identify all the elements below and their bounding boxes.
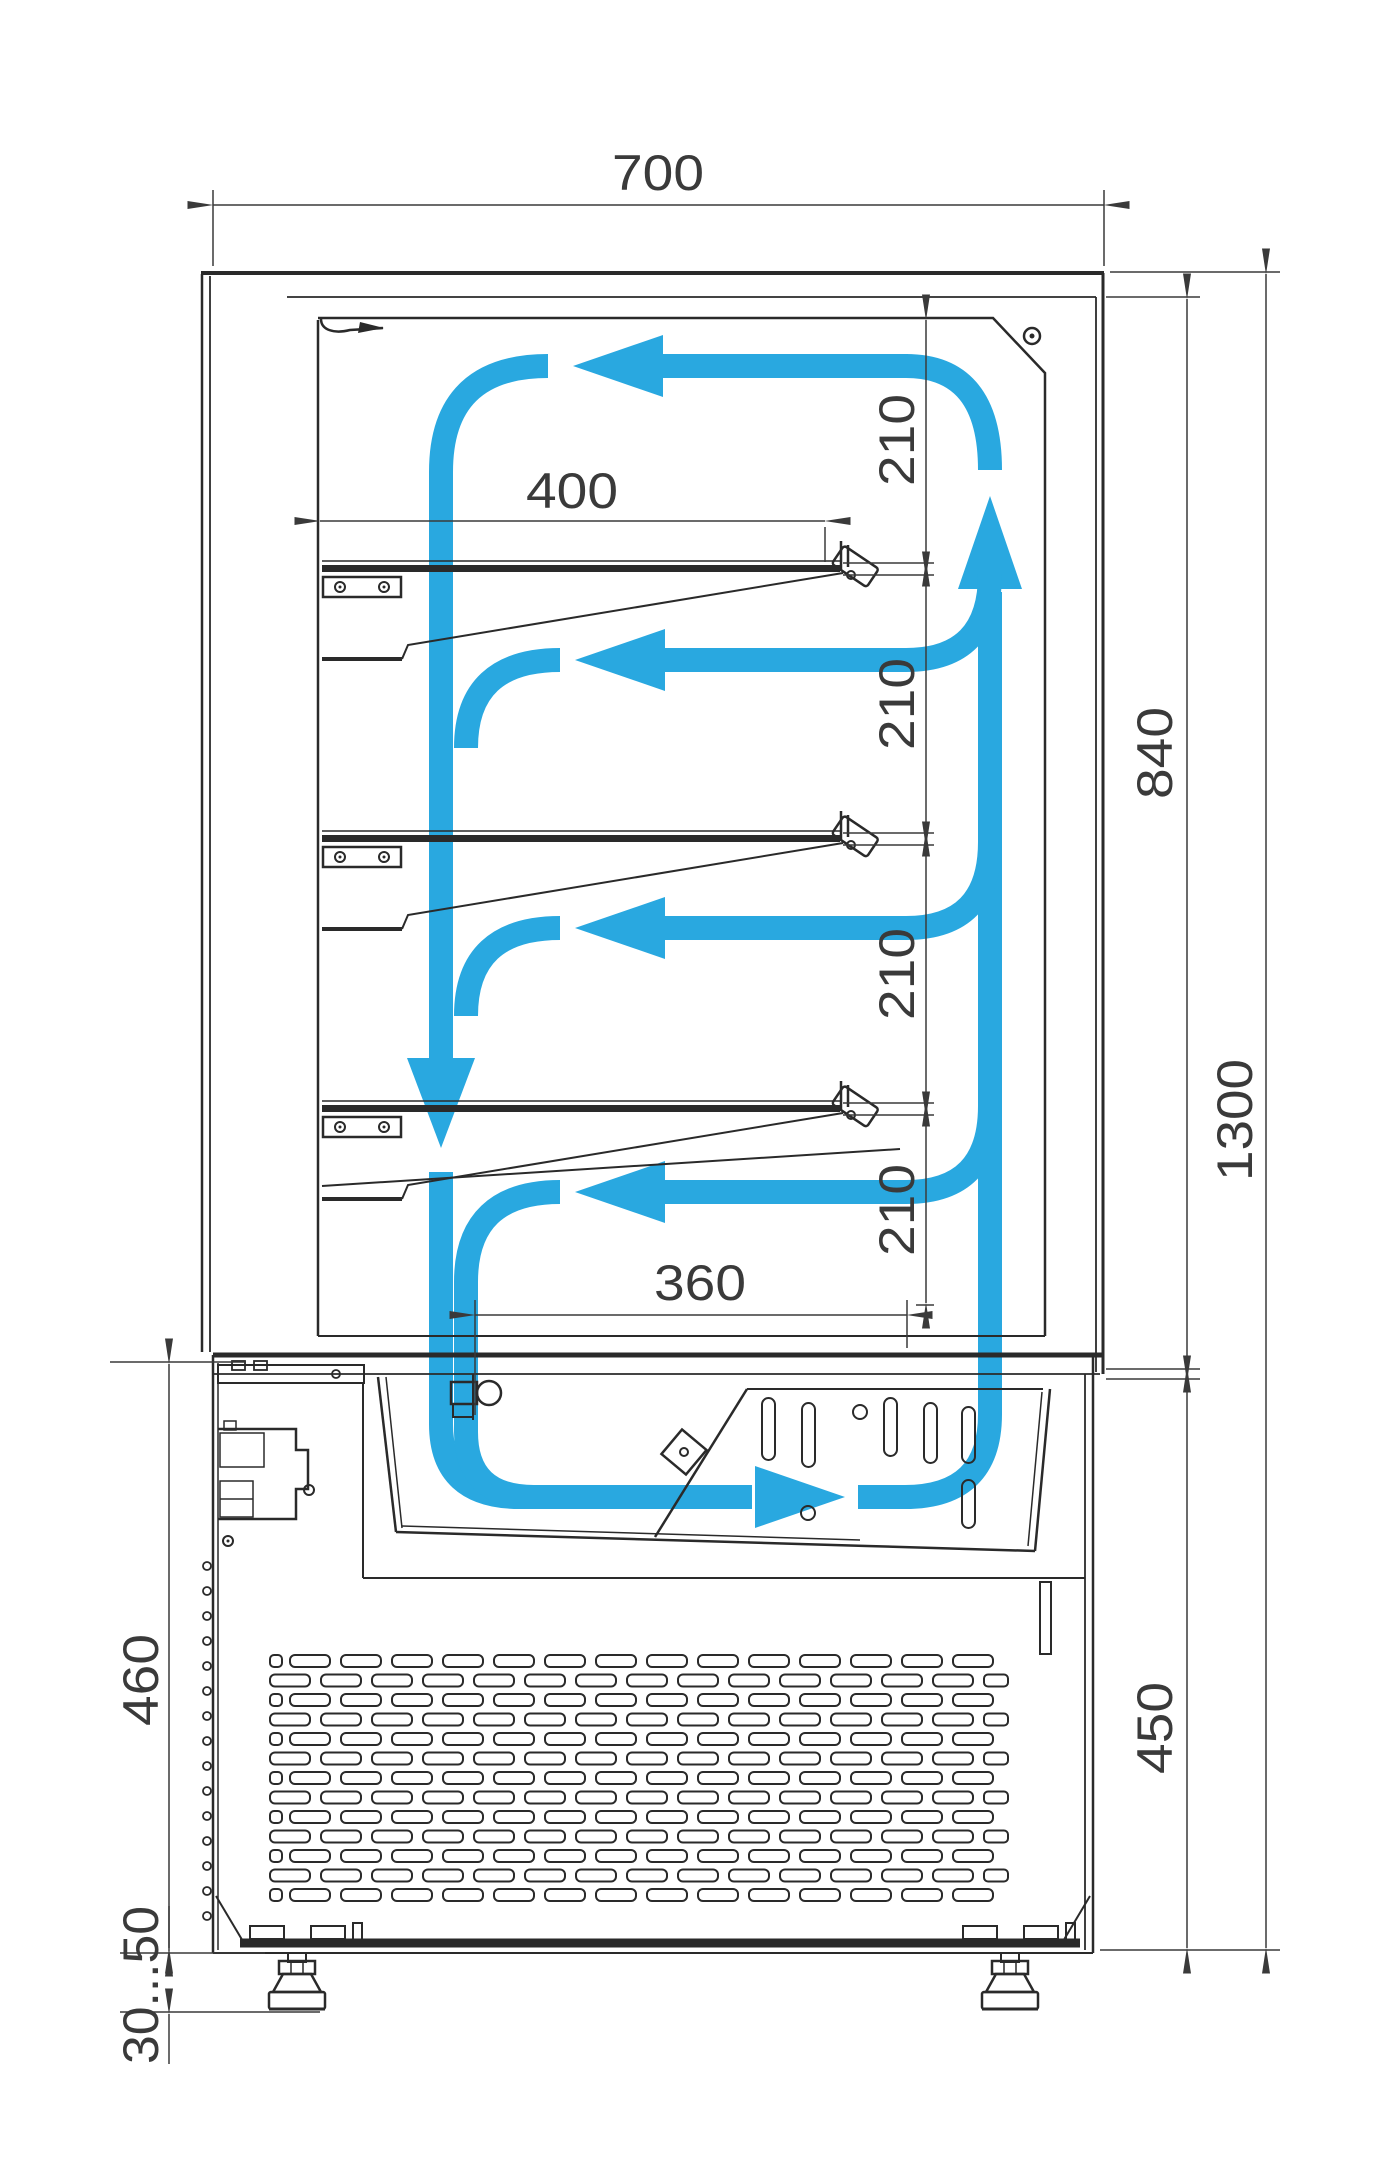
- dim-intake-width-label: 360: [654, 1255, 746, 1311]
- display-case-airflow-diagram: 700 400 360 210 210 210 210 840 450 1300…: [0, 0, 1390, 2181]
- dim-base-height-left-label: 460: [113, 1634, 169, 1726]
- dim-gap3-label: 210: [869, 928, 925, 1020]
- airflow-left-arrowhead-level3: [575, 1161, 665, 1223]
- airflow-level2-right-elbow: [906, 842, 990, 928]
- airflow-level2-left-elbow: [466, 928, 560, 1016]
- tray-right-wall: [1035, 1389, 1050, 1551]
- airflow-level1-left-elbow: [466, 660, 560, 748]
- wall-serration: [203, 1562, 211, 1920]
- ceiling-gasket-tip: [358, 322, 384, 333]
- dimension-labels: 700 400 360 210 210 210 210 840 450 1300…: [113, 145, 1263, 2064]
- evaporator-plate-edge: [655, 1389, 747, 1537]
- dim-foot-range-label: 30...50: [113, 1906, 169, 2064]
- airflow-left-arrowhead-level1: [575, 629, 665, 691]
- plate-mount-bracket: [661, 1429, 706, 1474]
- electrical-box: [218, 1429, 308, 1519]
- airflow-arrows: [407, 335, 1022, 1528]
- ventilation-grille: [270, 1655, 1008, 1901]
- airflow-level3-left-elbow: [466, 1192, 560, 1497]
- airflow-left-arrowhead-top: [573, 335, 663, 397]
- adjustable-feet: [250, 1923, 1075, 2009]
- base-left-corner-brace: [216, 1896, 244, 1943]
- dim-width-top-label: 700: [612, 145, 704, 201]
- airflow-down-arrowhead: [407, 1058, 475, 1148]
- ext-840: [1106, 297, 1200, 1369]
- dim-overall-height-label: 1300: [1207, 1059, 1263, 1181]
- tray-left-wall: [378, 1377, 396, 1532]
- airflow-right-arrowhead: [755, 1466, 845, 1528]
- condensate-pipe: [1040, 1582, 1051, 1654]
- technical-drawing-page: 700 400 360 210 210 210 210 840 450 1300…: [0, 0, 1390, 2181]
- ext-700: [213, 190, 1104, 266]
- dim-shelf-depth-label: 400: [526, 463, 618, 519]
- ext-450: [1100, 1379, 1280, 1950]
- dim-interior-height-label: 840: [1127, 707, 1183, 799]
- dim-gap4-label: 210: [869, 1164, 925, 1256]
- shelves: [322, 541, 879, 1199]
- dim-base-height-right-label: 450: [1127, 1682, 1183, 1774]
- cabinet-structure: [201, 273, 1104, 2009]
- airflow-left-arrowhead-level2: [575, 897, 665, 959]
- dim-gap1-label: 210: [869, 394, 925, 486]
- dim-gap2-label: 210: [869, 658, 925, 750]
